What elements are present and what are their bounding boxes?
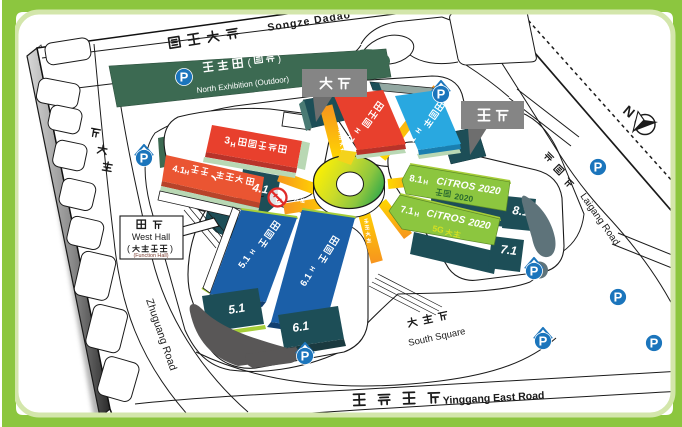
- svg-text:(: (: [127, 244, 130, 254]
- svg-text:P: P: [180, 70, 189, 85]
- svg-text:P: P: [614, 290, 623, 305]
- svg-text:P: P: [530, 264, 539, 279]
- svg-text:P: P: [301, 349, 310, 364]
- svg-text:P: P: [539, 334, 548, 349]
- svg-text:P: P: [140, 151, 149, 166]
- svg-text:P: P: [437, 87, 446, 102]
- svg-text:6.1: 6.1: [291, 318, 310, 334]
- svg-text:): ): [170, 244, 173, 254]
- svg-text:P: P: [594, 160, 603, 175]
- svg-text:West Hall: West Hall: [132, 232, 170, 242]
- svg-text:7.1: 7.1: [500, 242, 519, 258]
- svg-text:5.1: 5.1: [227, 300, 246, 316]
- svg-text:(Function Hall): (Function Hall): [133, 253, 168, 259]
- svg-text:8.1: 8.1: [409, 173, 424, 186]
- svg-text:P: P: [650, 336, 659, 351]
